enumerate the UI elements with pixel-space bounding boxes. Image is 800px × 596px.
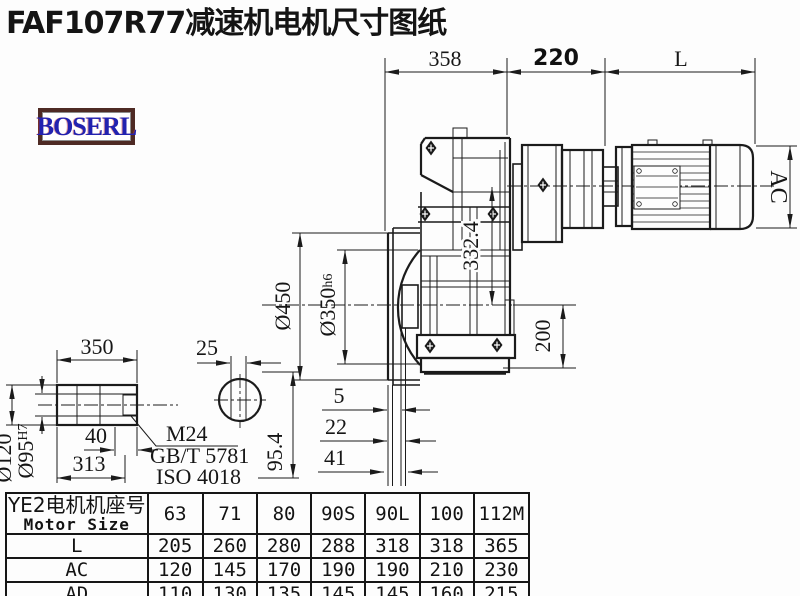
dim-gap-22: 22 <box>325 414 347 439</box>
table-header-motor-size: YE2电机机座号 Motor Size <box>6 493 148 534</box>
cell-AC-90L: 190 <box>365 558 419 582</box>
col-header-112M: 112M <box>474 493 529 534</box>
dim-spigot-diameter: Ø350h6 <box>315 274 340 337</box>
dim-flange-od: Ø450 <box>270 282 295 331</box>
motor <box>616 140 753 229</box>
cell-AD-90S: 145 <box>311 582 365 596</box>
col-header-90S: 90S <box>311 493 365 534</box>
dim-95-4: 95.4 <box>262 433 287 472</box>
extension-lines <box>6 58 797 486</box>
table-header-en: Motor Size <box>7 516 147 533</box>
row-label-AC: AC <box>6 558 148 582</box>
table-row-AC: AC 120 145 170 190 190 210 230 <box>6 558 529 582</box>
cell-AD-80: 135 <box>257 582 311 596</box>
dim-220: 220 <box>533 46 579 71</box>
cell-AD-112M: 215 <box>474 582 529 596</box>
cell-AC-112M: 230 <box>474 558 529 582</box>
cell-AC-100: 210 <box>420 558 474 582</box>
dim-center-332: 332.4 <box>458 221 483 271</box>
cell-L-90L: 318 <box>365 534 419 558</box>
dim-200: 200 <box>530 320 555 353</box>
table-header-cn: YE2电机机座号 <box>7 495 147 516</box>
dim-AC: AC <box>765 170 791 203</box>
col-header-80: 80 <box>257 493 311 534</box>
cell-AD-100: 160 <box>420 582 474 596</box>
motor-size-table: YE2电机机座号 Motor Size 63 71 80 90S 90L 100… <box>5 492 530 596</box>
cell-L-112M: 365 <box>474 534 529 558</box>
cell-AC-71: 145 <box>203 558 257 582</box>
col-header-63: 63 <box>148 493 203 534</box>
row-label-L: L <box>6 534 148 558</box>
col-header-100: 100 <box>420 493 474 534</box>
row-label-AD: AD <box>6 582 148 596</box>
cell-AC-80: 170 <box>257 558 311 582</box>
cell-L-90S: 288 <box>311 534 365 558</box>
cell-AD-90L: 145 <box>365 582 419 596</box>
table-header-row: YE2电机机座号 Motor Size 63 71 80 90S 90L 100… <box>6 493 529 534</box>
col-header-90L: 90L <box>365 493 419 534</box>
cell-AC-90S: 190 <box>311 558 365 582</box>
shaft-section-circle <box>219 356 261 421</box>
cell-AC-63: 120 <box>148 558 203 582</box>
cell-AD-63: 110 <box>148 582 203 596</box>
cell-L-80: 280 <box>257 534 311 558</box>
cell-AD-71: 130 <box>203 582 257 596</box>
dim-L: L <box>674 46 687 71</box>
cell-L-63: 205 <box>148 534 203 558</box>
dim-gap-41: 41 <box>324 445 346 470</box>
dim-313: 313 <box>73 451 106 476</box>
table-row-AD: AD 110 130 135 145 145 160 215 <box>6 582 529 596</box>
table-row-L: L 205 260 280 288 318 318 365 <box>6 534 529 558</box>
cell-L-71: 260 <box>203 534 257 558</box>
drawing-page: FAF107R77减速机电机尺寸图纸 BOSERL <box>0 0 800 596</box>
cell-L-100: 318 <box>420 534 474 558</box>
dim-shaft-350: 350 <box>81 334 114 359</box>
dim-25: 25 <box>196 335 218 360</box>
motor-adapter <box>513 145 618 250</box>
output-flange <box>388 228 420 385</box>
col-header-71: 71 <box>203 493 257 534</box>
dim-bore-95: Ø95H7 <box>13 423 38 478</box>
dim-gap-5: 5 <box>334 383 345 408</box>
dim-40: 40 <box>85 423 107 448</box>
dim-358: 358 <box>429 46 462 71</box>
note-std-iso4018: ISO 4018 <box>156 464 241 489</box>
